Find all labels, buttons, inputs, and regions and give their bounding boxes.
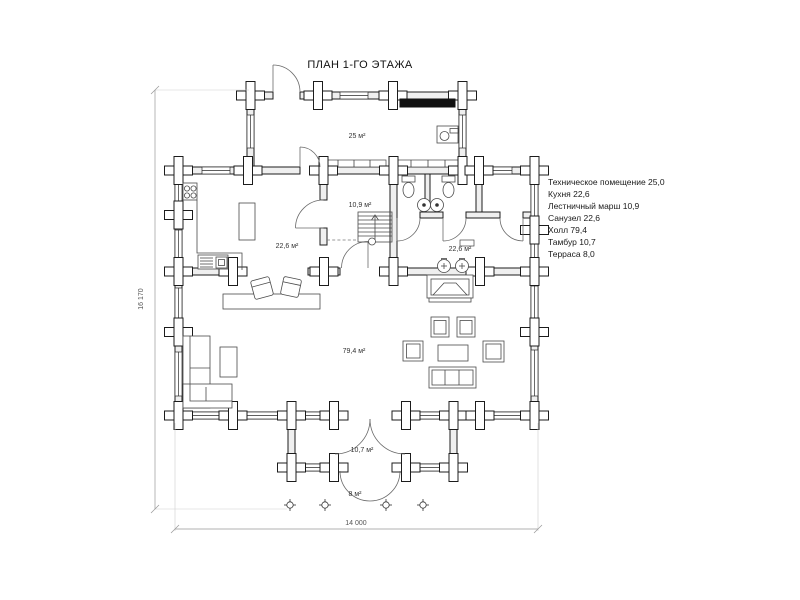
legend-item: Техническое помещение 25,0 xyxy=(548,177,665,187)
legend-item: Кухня 22,6 xyxy=(548,189,590,199)
stove xyxy=(183,183,197,200)
toilet xyxy=(402,176,415,198)
legend-item: Лестничный марш 10,9 xyxy=(548,201,640,211)
boiler-unit xyxy=(400,99,455,107)
room-label-kitchen: 22,6 м² xyxy=(276,243,299,250)
window xyxy=(192,412,222,419)
legend-item: Санузел 22,6 xyxy=(548,213,600,223)
log-joints-layer xyxy=(165,82,549,482)
window xyxy=(202,167,230,174)
kitchen-island xyxy=(239,203,255,240)
window xyxy=(175,352,182,396)
legend-item: Терраса 8,0 xyxy=(548,249,595,259)
armchair xyxy=(403,341,423,361)
window xyxy=(245,412,281,419)
terrace-columns xyxy=(284,499,429,511)
kitchen-sink-cabinet xyxy=(198,255,228,269)
window xyxy=(531,350,538,396)
room-label-tech: 25 м² xyxy=(349,133,367,140)
legend-item: Тамбур 10,7 xyxy=(548,237,596,247)
room-labels: 25 м² 10,9 м² 22,6 м² 22,6 м² 79,4 м² 10… xyxy=(276,133,472,498)
washbasin xyxy=(456,259,469,273)
window xyxy=(459,115,466,148)
side-table xyxy=(483,341,504,362)
legend-item: Холл 79,4 xyxy=(548,225,587,235)
window xyxy=(531,184,538,216)
dimension-line-bottom: 14 000 xyxy=(171,520,542,533)
fireplace xyxy=(427,275,473,302)
toilet xyxy=(442,176,455,198)
room-label-bathroom: 22,6 м² xyxy=(449,246,472,253)
sofa xyxy=(429,367,476,388)
bar-chair xyxy=(280,276,301,297)
sofa-table xyxy=(220,347,237,377)
room-label-vestibule: 10,7 м² xyxy=(351,447,374,454)
room-label-stair: 10,9 м² xyxy=(349,202,372,209)
window xyxy=(340,92,368,99)
window xyxy=(175,230,182,258)
window xyxy=(247,115,254,148)
page-background: 16 170 14 000 ПЛАН 1-ГО ЭТАЖА Техническо… xyxy=(0,0,800,600)
dimension-line-left: 16 170 xyxy=(138,86,159,513)
floor-plan: 16 170 14 000 ПЛАН 1-ГО ЭТАЖА Техническо… xyxy=(0,0,800,600)
bar-counter xyxy=(223,294,320,309)
washbasin xyxy=(438,259,451,273)
coffee-table xyxy=(438,345,468,361)
room-label-terrace: 8 м² xyxy=(349,491,363,498)
armchair xyxy=(431,317,449,337)
window xyxy=(531,286,538,320)
dimension-vertical-label: 16 170 xyxy=(138,288,145,310)
window xyxy=(175,288,182,320)
water-heater xyxy=(437,126,458,143)
window xyxy=(490,412,524,419)
armchair xyxy=(457,317,475,337)
room-label-hall: 79,4 м² xyxy=(343,348,366,355)
page-title: ПЛАН 1-ГО ЭТАЖА xyxy=(307,59,413,71)
legend: Техническое помещение 25,0 Кухня 22,6 Ле… xyxy=(548,177,665,259)
dimension-horizontal-label: 14 000 xyxy=(345,520,367,527)
staircase xyxy=(327,212,392,245)
